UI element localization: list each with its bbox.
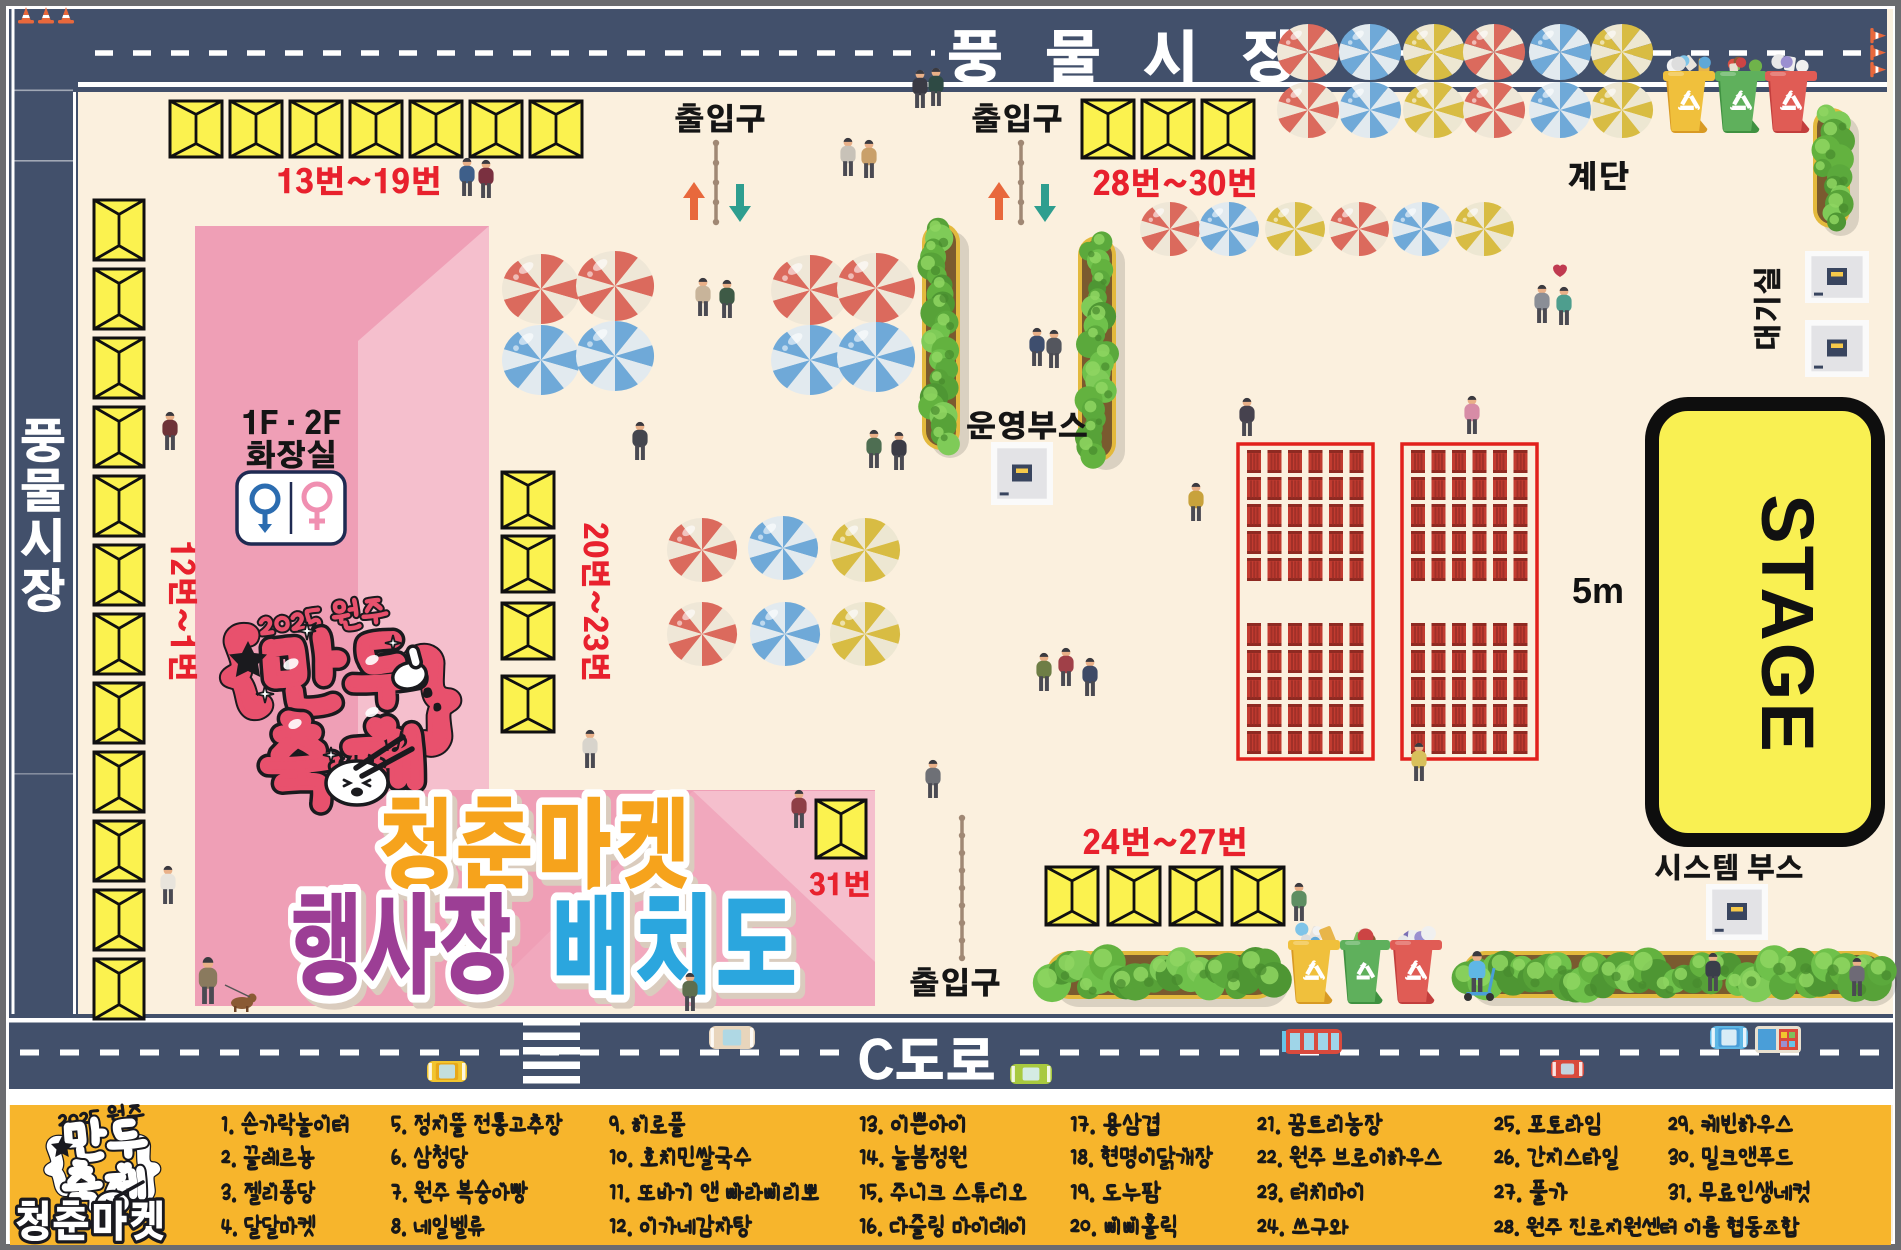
svg-text:STAGE: STAGE bbox=[1746, 494, 1829, 753]
svg-text:5m: 5m bbox=[1572, 570, 1624, 611]
